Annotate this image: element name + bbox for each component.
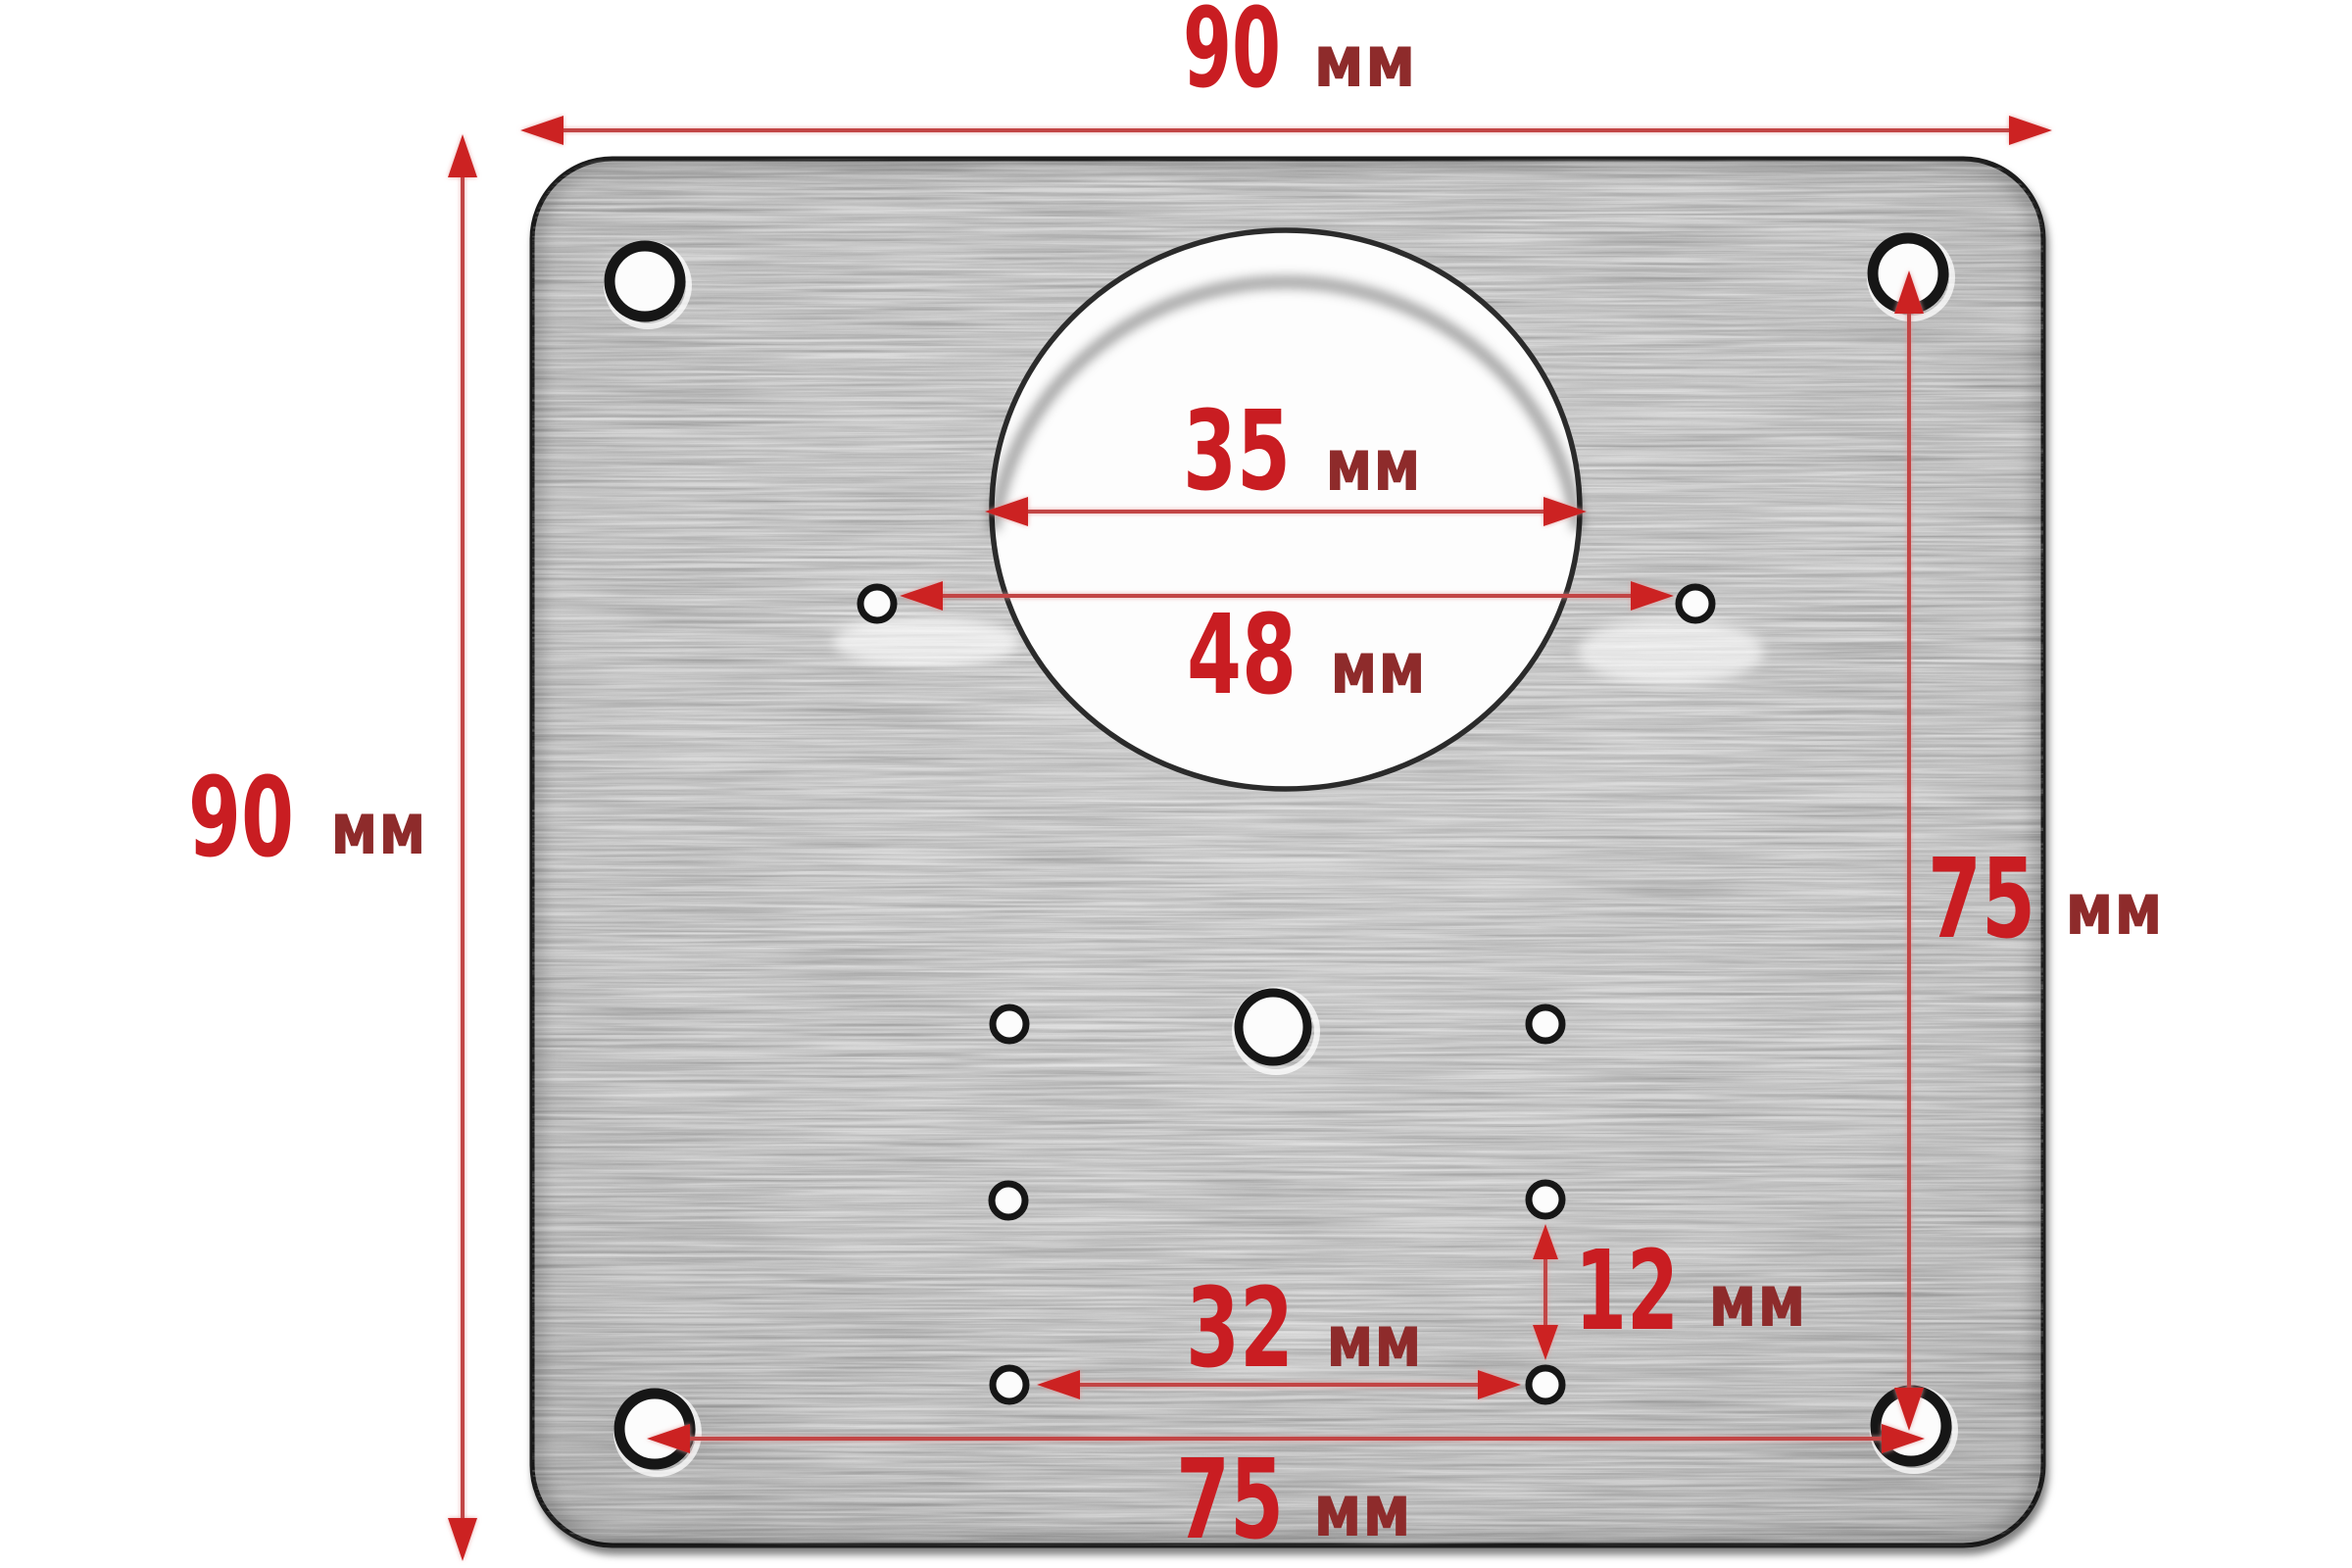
grid-hole-row2-right	[1529, 1183, 1562, 1216]
worn-patch-left	[833, 616, 1019, 667]
grid-hole-row1-left	[993, 1007, 1026, 1041]
label-lower-span-value: 32	[1186, 1265, 1294, 1393]
arrowhead-right-icon	[2009, 116, 2052, 145]
label-left-height-value: 90	[188, 755, 294, 882]
label-right-vertical-unit: мм	[2065, 867, 2163, 952]
label-cup-diameter-value: 35	[1183, 388, 1291, 515]
dim-left-height	[448, 134, 477, 1561]
label-offset-unit: мм	[1708, 1259, 1806, 1344]
technical-diagram-canvas: 90 мм 90 мм 35 мм 48 мм 75 мм 12 мм 32 м…	[0, 0, 2352, 1568]
worn-patch-right	[1578, 618, 1764, 685]
pilot-hole-left	[860, 587, 894, 620]
label-pilot-span-unit: мм	[1330, 626, 1426, 710]
label-right-vertical-value: 75	[1928, 836, 2035, 963]
arrowhead-up-icon	[448, 134, 477, 177]
label-bottom-span-value: 75	[1176, 1437, 1284, 1564]
hinge-plate-diagram: 90 мм 90 мм 35 мм 48 мм 75 мм 12 мм 32 м…	[0, 0, 2352, 1568]
grid-hole-row3-right	[1529, 1368, 1562, 1401]
label-left-height-unit: мм	[330, 787, 426, 871]
label-cup-diameter-unit: мм	[1325, 423, 1421, 508]
grid-hole-row3-left	[993, 1368, 1026, 1401]
grid-hole-row1-right	[1529, 1007, 1562, 1041]
arrowhead-left-icon	[520, 116, 563, 145]
label-top-width-value: 90	[1183, 0, 1281, 113]
label-top-width-unit: мм	[1313, 20, 1416, 104]
label-pilot-span-value: 48	[1187, 592, 1297, 719]
corner-hole-top-left	[610, 246, 680, 317]
label-offset-value: 12	[1575, 1228, 1679, 1355]
label-lower-span-unit: мм	[1326, 1299, 1422, 1384]
grid-hole-center-large	[1239, 993, 1307, 1061]
dim-top-width	[520, 116, 2052, 145]
grid-hole-row2-left	[992, 1184, 1025, 1217]
pilot-hole-right	[1679, 587, 1712, 620]
arrowhead-down-icon	[448, 1518, 477, 1561]
label-bottom-span-unit: мм	[1313, 1469, 1411, 1553]
